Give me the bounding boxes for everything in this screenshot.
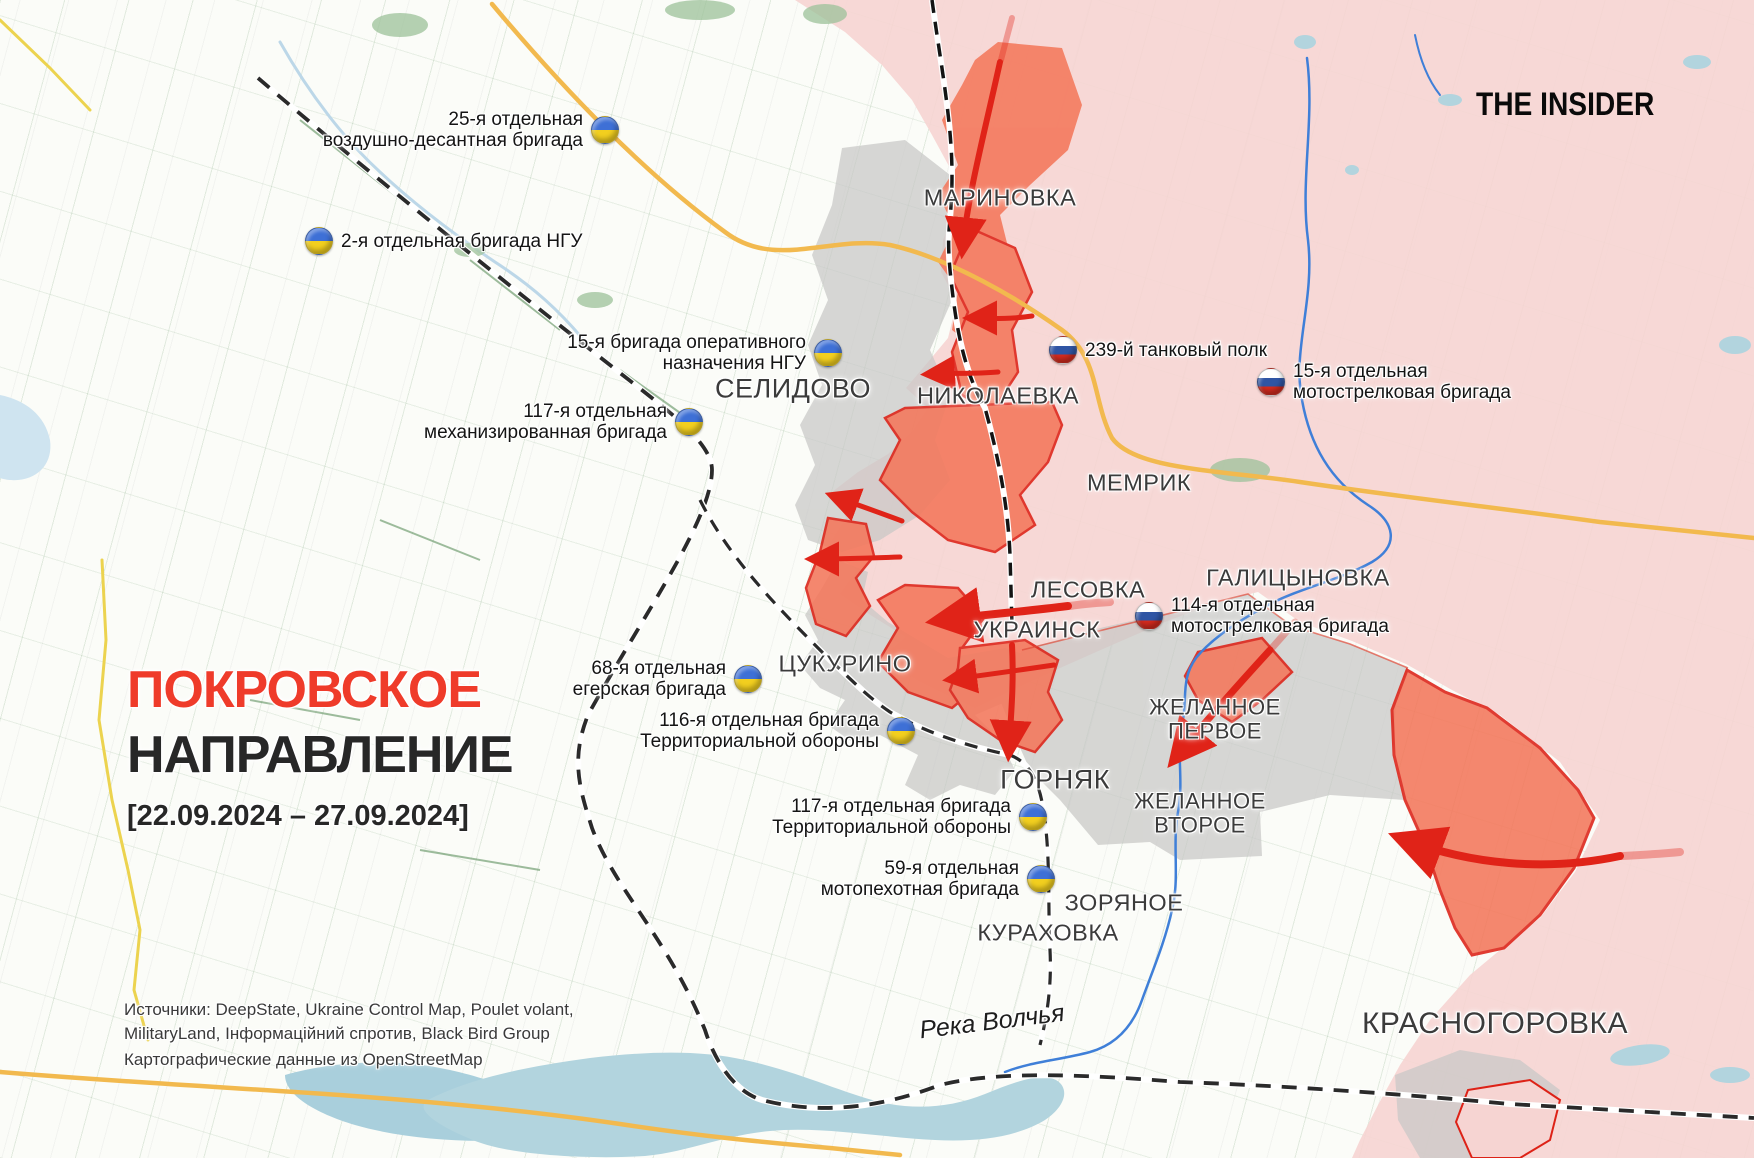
ukraine-flag-icon — [1019, 803, 1047, 831]
sources-line2: MilitaryLand, Інформаційний спротив, Bla… — [124, 1022, 574, 1046]
city-label-zhelannoe-vtoroe: ЖЕЛАННОЕВТОРОЕ — [1134, 789, 1266, 837]
unit-label-ru-114-motor: 114-я отдельнаямотострелковая бригада — [1135, 595, 1389, 638]
russia-flag-icon — [1257, 368, 1285, 396]
unit-name: 68-я отдельнаяегерская бригада — [573, 658, 726, 701]
ukraine-flag-icon — [734, 665, 762, 693]
city-label-marinovka: МАРИНОВКА — [924, 185, 1077, 210]
unit-name: 117-я отдельная бригадаТерриториальной о… — [772, 796, 1011, 839]
map-date-range: [22.09.2024 – 27.09.2024] — [127, 802, 513, 831]
unit-name: 15-я отдельнаямотострелковая бригада — [1293, 361, 1511, 404]
ukraine-flag-icon — [814, 339, 842, 367]
unit-label-ua-25-airborne: 25-я отдельнаявоздушно-десантная бригада — [323, 109, 619, 152]
map-stage: ПОКРОВСКОЕ НАПРАВЛЕНИЕ [22.09.2024 – 27.… — [0, 0, 1754, 1158]
ukraine-flag-icon — [1027, 865, 1055, 893]
ukraine-flag-icon — [591, 116, 619, 144]
city-label-nikolaevka: НИКОЛАЕВКА — [917, 383, 1079, 408]
city-label-krasnogorovka: КРАСНОГОРОВКА — [1362, 1008, 1628, 1040]
ukraine-flag-icon — [305, 227, 333, 255]
unit-label-ua-59-motor: 59-я отдельнаямотопехотная бригада — [821, 858, 1055, 901]
unit-name: 239-й танковый полк — [1085, 340, 1267, 362]
city-label-lesovka: ЛЕСОВКА — [1031, 577, 1145, 602]
city-label-gornyak: ГОРНЯК — [1000, 765, 1110, 794]
unit-label-ru-15-motor: 15-я отдельнаямотострелковая бригада — [1257, 361, 1511, 404]
unit-name: 2-я отдельная бригада НГУ — [341, 231, 582, 253]
city-label-selidovo: СЕЛИДОВО — [715, 374, 871, 403]
city-label-ukrainsk: УКРАИНСК — [974, 617, 1101, 642]
sources-line1: Источники: DeepState, Ukraine Control Ma… — [124, 998, 574, 1022]
map-title-line2: НАПРАВЛЕНИЕ — [127, 729, 513, 781]
unit-name: 25-я отдельнаявоздушно-десантная бригада — [323, 109, 583, 152]
unit-name: 15-я бригада оперативногоназначения НГУ — [567, 332, 806, 375]
title-block: ПОКРОВСКОЕ НАПРАВЛЕНИЕ [22.09.2024 – 27.… — [127, 664, 513, 831]
the-insider-logo: THE INSIDER — [1476, 86, 1654, 123]
river-label: Река Волчья — [918, 999, 1066, 1046]
unit-label-ua-2-ngu: 2-я отдельная бригада НГУ — [305, 227, 582, 255]
unit-label-ua-117-td: 117-я отдельная бригадаТерриториальной о… — [772, 796, 1047, 839]
sources-line3: Картографические данные из OpenStreetMap — [124, 1048, 574, 1072]
russia-flag-icon — [1135, 602, 1163, 630]
unit-name: 114-я отдельнаямотострелковая бригада — [1171, 595, 1389, 638]
city-label-galitsynovka: ГАЛИЦЫНОВКА — [1206, 565, 1390, 590]
city-label-tsukurino: ЦУКУРИНО — [778, 651, 911, 676]
unit-label-ua-15-ngu: 15-я бригада оперативногоназначения НГУ — [567, 332, 842, 375]
city-label-zhelannoe-pervoe: ЖЕЛАННОЕПЕРВОЕ — [1149, 695, 1281, 743]
city-label-memrik: МЕМРИК — [1087, 470, 1191, 495]
russia-flag-icon — [1049, 336, 1077, 364]
unit-label-ua-116-td: 116-я отдельная бригадаТерриториальной о… — [640, 710, 915, 753]
unit-label-ua-68-jaeger: 68-я отдельнаяегерская бригада — [573, 658, 762, 701]
ukraine-flag-icon — [887, 717, 915, 745]
unit-label-ua-117-mech: 117-я отдельнаямеханизированная бригада — [424, 401, 703, 444]
unit-name: 59-я отдельнаямотопехотная бригада — [821, 858, 1019, 901]
map-title-line1: ПОКРОВСКОЕ — [127, 664, 513, 716]
unit-name: 116-я отдельная бригадаТерриториальной о… — [640, 710, 879, 753]
city-label-zoryanoe: ЗОРЯНОЕ — [1065, 890, 1184, 915]
city-label-kurakhovka: КУРАХОВКА — [977, 920, 1118, 945]
label-layer: ПОКРОВСКОЕ НАПРАВЛЕНИЕ [22.09.2024 – 27.… — [0, 0, 1754, 1158]
unit-name: 117-я отдельнаямеханизированная бригада — [424, 401, 667, 444]
unit-label-ru-239-tank: 239-й танковый полк — [1049, 336, 1267, 364]
ukraine-flag-icon — [675, 408, 703, 436]
sources-block: Источники: DeepState, Ukraine Control Ma… — [124, 998, 574, 1072]
